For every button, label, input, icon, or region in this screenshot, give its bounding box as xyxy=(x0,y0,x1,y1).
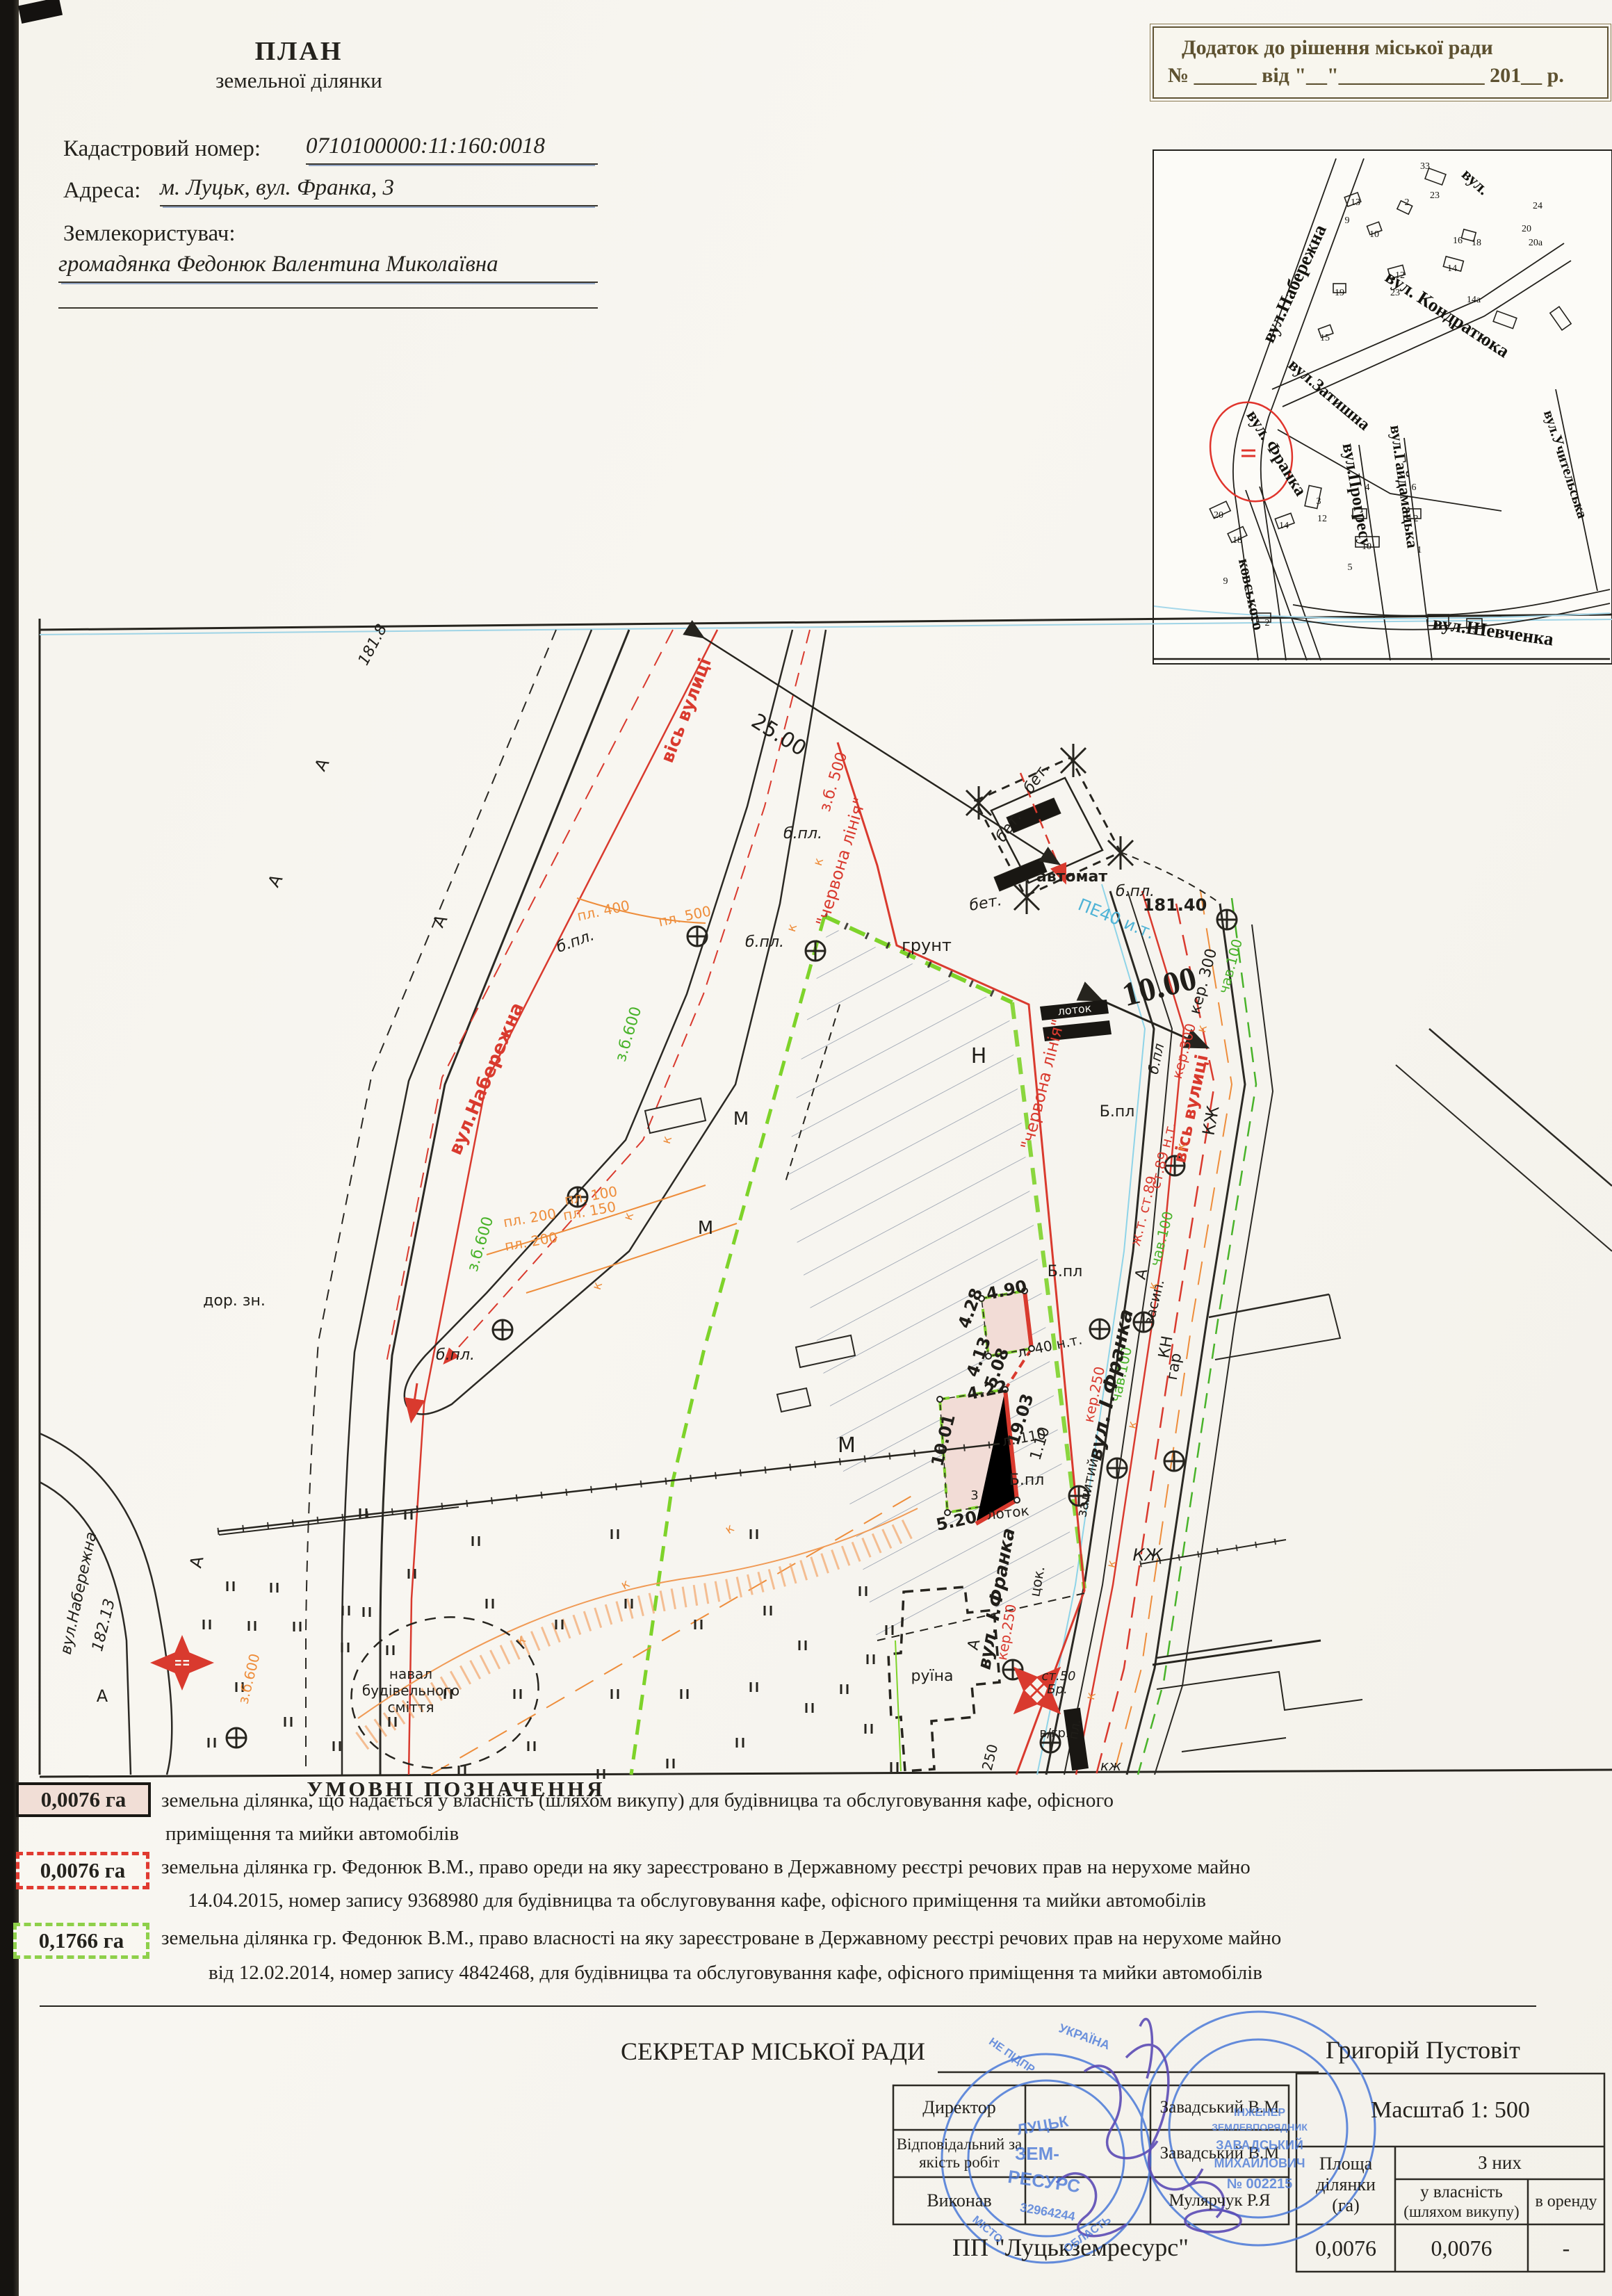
map-label: вул.Прогресу xyxy=(1340,442,1375,548)
map-label: 20 xyxy=(1214,511,1223,521)
map-label: ЛУЦЬК xyxy=(1016,2114,1069,2138)
map-label: 6 xyxy=(1412,483,1417,493)
map-label: 7 xyxy=(1244,585,1249,594)
map-label: 4.90 xyxy=(985,1278,1029,1303)
map-label: к xyxy=(660,1134,674,1146)
map-label: к xyxy=(1196,1024,1210,1034)
map-label: А xyxy=(97,1688,108,1704)
map-label: б.пл. xyxy=(436,1348,475,1363)
map-label: М xyxy=(838,1435,856,1456)
map-label: РЕСУРС xyxy=(1007,2167,1081,2195)
map-label: лоток xyxy=(1057,1002,1092,1017)
map-label: з.б. 500 xyxy=(818,751,851,814)
map-label: вул.Набережна xyxy=(1259,222,1330,345)
map-label: 3 xyxy=(1317,497,1321,507)
map-label: к xyxy=(785,922,799,934)
map-label: Бр. xyxy=(1047,1684,1068,1696)
map-label: МІСТО xyxy=(970,2215,1004,2246)
map-label: 5 xyxy=(1348,563,1353,573)
map-label: М xyxy=(698,1219,713,1237)
map-label: к xyxy=(1126,1420,1140,1431)
map-label: 18 xyxy=(1232,536,1242,546)
map-label: 20 xyxy=(1522,225,1531,234)
map-label: 5.20 xyxy=(935,1508,979,1533)
map-label: 32964244 xyxy=(1019,2201,1076,2223)
map-label: цок. xyxy=(1027,1565,1046,1597)
map-label: 181.8 xyxy=(357,622,391,668)
map-label: А xyxy=(187,1554,206,1570)
map-label: б.пл. xyxy=(745,935,784,950)
map-label: 250 xyxy=(980,1743,1000,1772)
map-label: № 002215 xyxy=(1227,2177,1293,2191)
map-label: 13 xyxy=(1351,198,1360,208)
map-label: 182.13 xyxy=(90,1597,118,1653)
map-label: М xyxy=(733,1110,749,1128)
map-label: МИХАЙЛОВИЧ xyxy=(1214,2157,1305,2169)
map-label: 14 xyxy=(1279,521,1289,531)
map-label: 1 xyxy=(1435,622,1440,632)
map-label: к xyxy=(622,1211,636,1222)
map-label: бет. xyxy=(968,893,1003,914)
map-label: 181.40 xyxy=(1143,897,1207,913)
map-label: навал xyxy=(389,1667,432,1681)
map-label: сміття xyxy=(388,1700,434,1714)
map-label: 4 xyxy=(1365,483,1370,493)
map-label: 5 xyxy=(1473,626,1478,635)
map-label: ЗЕМЛЕВПОРЯДНИК xyxy=(1212,2122,1308,2132)
map-label: лоток xyxy=(986,1504,1030,1522)
map-label: вул.Набережна xyxy=(446,1000,527,1158)
map-label: пл. 500 xyxy=(657,904,712,929)
map-label: вул. Кондратюка xyxy=(1382,267,1513,361)
map-label: ст.50 xyxy=(1041,1670,1075,1683)
map-label: 9 xyxy=(1223,577,1228,587)
map-label: А xyxy=(1134,1267,1151,1281)
map-label: з.б.600 xyxy=(614,1005,645,1064)
map-label: 14а xyxy=(1467,295,1481,305)
map-label: гар xyxy=(1165,1352,1184,1381)
map-label: ковського xyxy=(1236,557,1267,631)
map-label: б.пл xyxy=(1146,1042,1166,1075)
map-label: пл. 200 xyxy=(502,1206,557,1229)
map-label: 25.00 xyxy=(748,711,810,760)
map-label: ЗАВАДСЬКИЙ xyxy=(1216,2139,1303,2151)
map-label: бет. xyxy=(1022,760,1053,796)
map-label: 33 xyxy=(1420,162,1430,172)
map-label: 2 xyxy=(1414,514,1419,524)
map-label: 18 xyxy=(1472,238,1481,248)
map-label: УКРАЇНА xyxy=(1057,2021,1112,2051)
map-label: 23 xyxy=(1430,191,1440,201)
map-label: ІНЖЕНЕР xyxy=(1234,2108,1285,2119)
map-label: 9 xyxy=(1345,216,1350,226)
map-label: 4.28 xyxy=(956,1286,986,1330)
map-label: з.б.600 xyxy=(236,1652,261,1706)
map-label: 2 xyxy=(1405,198,1410,208)
map-label: бет. xyxy=(994,809,1025,845)
map-label: 14 xyxy=(1447,264,1457,274)
map-label: к xyxy=(591,1280,605,1292)
map-label: 12 xyxy=(1317,514,1327,524)
map-label: 10 xyxy=(1369,230,1379,240)
map-label: вул. Франка xyxy=(1243,407,1309,499)
scanned-land-plan-page: ПЛАН земельної ділянки Кадастровий номер… xyxy=(0,0,1612,2296)
map-label: пл. xyxy=(1068,1718,1084,1741)
map-label: кж xyxy=(1100,1759,1121,1773)
map-label: ЗЕМ- xyxy=(1015,2144,1059,2163)
map-label: чав.100 xyxy=(1216,938,1244,995)
map-label: в/гр. xyxy=(1039,1727,1069,1740)
map-label: Б.пл xyxy=(1100,1105,1135,1120)
map-label: 20а xyxy=(1529,238,1542,248)
map-label: пл. 400 xyxy=(576,898,630,923)
map-label: вул.Затишна xyxy=(1285,356,1374,434)
map-label: Б.пл xyxy=(1009,1473,1045,1488)
map-label: б.пл. xyxy=(783,827,822,842)
map-label: автомат xyxy=(1036,870,1107,885)
map-label: Б.пл xyxy=(1048,1264,1083,1280)
map-label: 10.01 xyxy=(929,1412,958,1467)
map-label: к xyxy=(723,1522,736,1537)
map-label: 19 xyxy=(1335,288,1344,298)
map-label: "червона лінія" xyxy=(1018,1018,1067,1151)
map-label: руїна xyxy=(911,1669,954,1684)
map-label: 10 xyxy=(1362,542,1371,552)
map-label: А xyxy=(430,912,450,930)
map-label: грунт xyxy=(902,937,952,954)
map-label: к xyxy=(812,856,826,868)
map-label: б.пл. xyxy=(555,928,596,956)
map-label: 2 xyxy=(1265,619,1270,628)
map-label: вул.Учительська xyxy=(1541,409,1590,521)
map-label: вул.Шевченка xyxy=(1431,613,1554,649)
map-label: 12 xyxy=(1395,271,1405,281)
map-label: залитий xyxy=(1074,1457,1100,1519)
map-label: КЖ xyxy=(1200,1105,1221,1137)
map-label: чав.100 xyxy=(1148,1210,1175,1268)
map-label: 15 xyxy=(1320,334,1330,343)
map-label: вісь вулиці xyxy=(658,656,714,765)
map-label: пл. 200 xyxy=(503,1230,558,1253)
map-label: 16 xyxy=(1453,236,1463,246)
map-label: к xyxy=(514,1634,528,1648)
map-label: КЖ xyxy=(1133,1547,1163,1563)
map-label: к xyxy=(619,1577,632,1592)
map-label: А xyxy=(312,756,332,774)
map-label: 3 xyxy=(970,1490,978,1502)
map-label: 23 xyxy=(1390,288,1400,298)
map-label: к xyxy=(1084,1691,1098,1702)
map-label: дор. зн. xyxy=(203,1294,266,1309)
map-label-layer: вісь вулиці25.00з.б. 500"червона лінія""… xyxy=(0,0,1612,2296)
map-label: л. 40 н.т. xyxy=(1016,1332,1084,1359)
map-label: 1 xyxy=(1417,546,1422,555)
map-label: 2 xyxy=(1360,514,1365,524)
map-label: к xyxy=(1105,1559,1119,1570)
map-label: з.б.600 xyxy=(466,1215,497,1273)
map-label: 4.22 xyxy=(966,1378,1009,1403)
map-label: Н xyxy=(971,1046,987,1067)
map-label: будівельного xyxy=(362,1684,459,1697)
map-label: НЕ ПІДПР xyxy=(986,2037,1036,2076)
map-label: 24 xyxy=(1533,202,1542,211)
map-label: вул. xyxy=(1458,166,1492,199)
map-label: А xyxy=(266,872,286,890)
